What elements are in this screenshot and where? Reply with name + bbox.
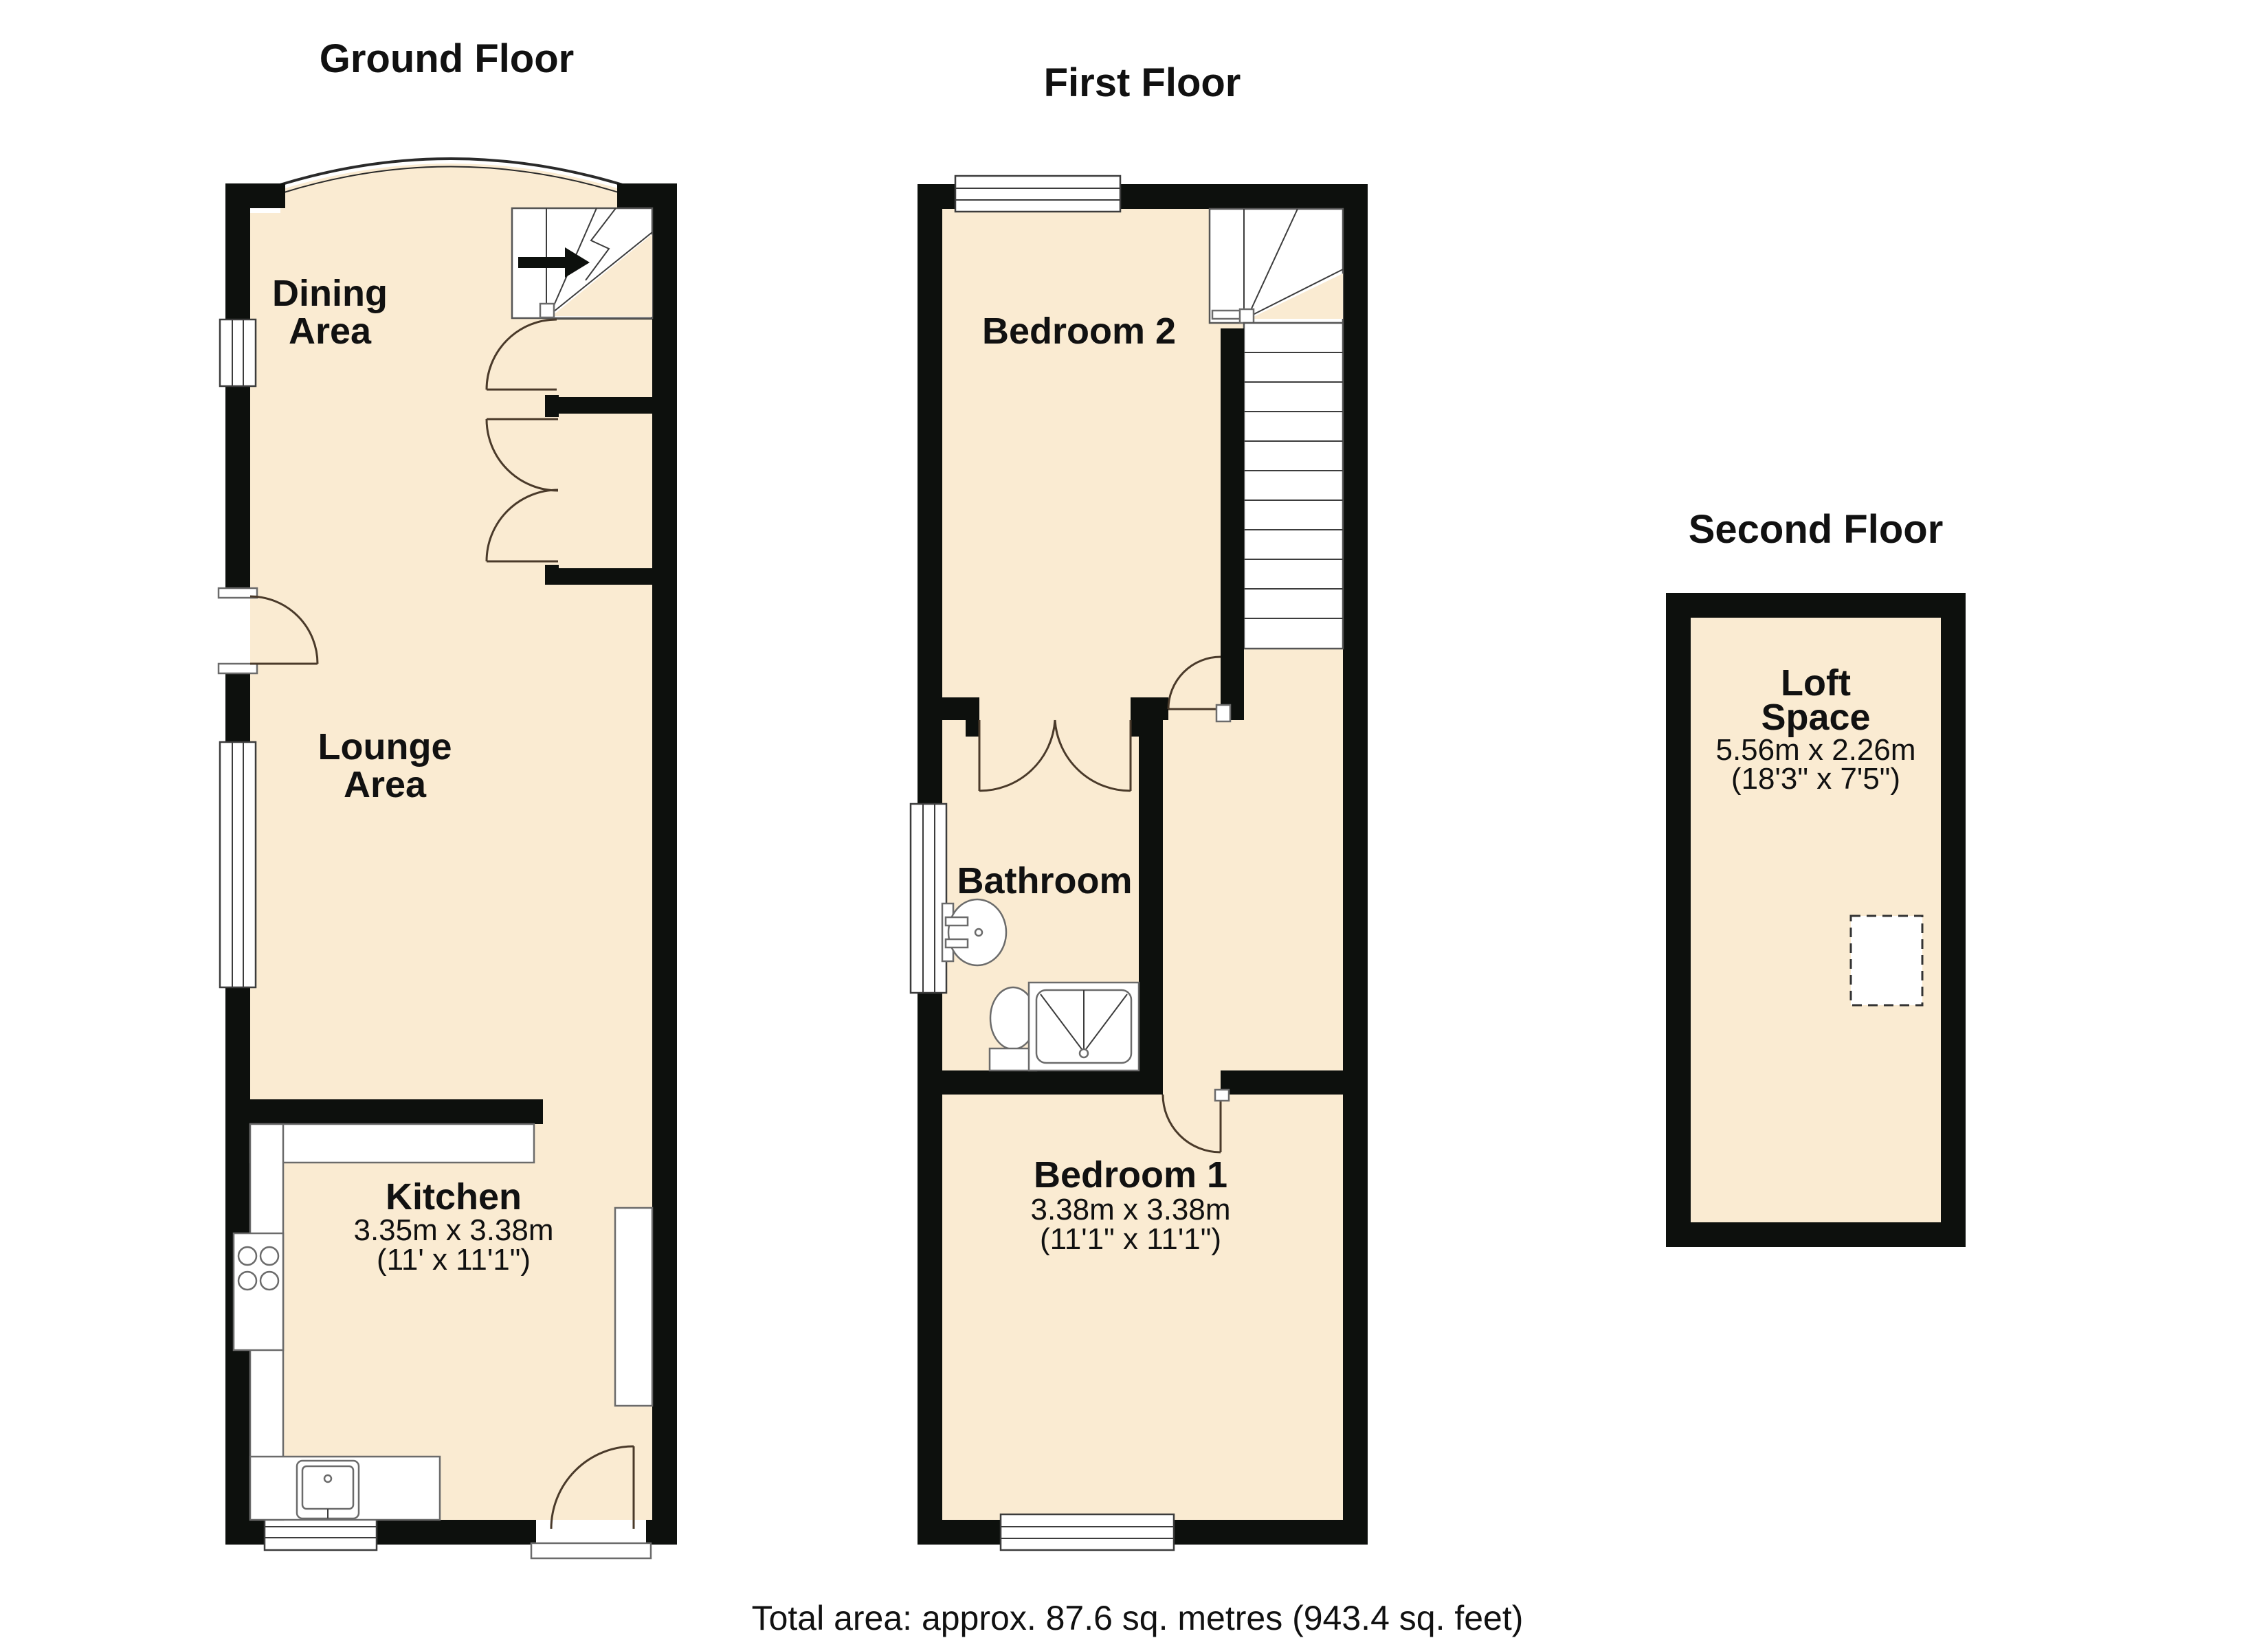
wall-hall-top (559, 397, 652, 414)
ff-wall-landing-left (918, 697, 979, 720)
dining-label-line2: Area (289, 311, 372, 352)
hob (234, 1233, 283, 1350)
loft-dim-imperial: (18'3" x 7'5") (1731, 762, 1900, 796)
bedroom1-dim-imperial: (11'1" x 11'1") (1040, 1222, 1221, 1256)
ff-stair-newel-post (1240, 309, 1254, 323)
sf-wall-left (1666, 593, 1691, 1247)
ground-floor-title: Ground Floor (320, 36, 575, 81)
sf-wall-top (1666, 593, 1966, 618)
bedroom1-dim-metric: 3.38m x 3.38m (1030, 1193, 1230, 1226)
kitchen-recess (615, 1208, 652, 1406)
bathroom-label: Bathroom (957, 860, 1133, 901)
lounge-window (220, 742, 256, 987)
kitchen-sink (297, 1461, 359, 1518)
ff-bottom-window (1001, 1514, 1174, 1550)
ff-wall-landing-mid (1131, 697, 1168, 720)
kitchen-dim-metric: 3.35m x 3.38m (353, 1213, 553, 1247)
wall-hall-stub-top (545, 395, 559, 417)
kitchen-label: Kitchen (386, 1176, 522, 1218)
ff-wall-bedroom1-top (1221, 1070, 1343, 1095)
shower-tray (1029, 983, 1139, 1070)
ground-floor-room-fill (250, 164, 652, 1520)
floorplan-page: Ground Floor (0, 0, 2268, 1649)
wall-hall-bottom (559, 568, 652, 585)
second-floor-plan: Second Floor Loft Space 5.56m x 2.26m (1… (1666, 507, 1966, 1247)
ff-wall-stairs-side (1221, 328, 1244, 720)
stairs-ground (512, 208, 652, 318)
ff-wall-right (1343, 184, 1368, 1545)
ff-top-window (955, 176, 1120, 212)
ff-wall-bathroom-bottom (918, 1070, 1163, 1095)
loft-label-line2: Space (1761, 697, 1870, 738)
wall-hall-stub-bottom (545, 565, 559, 585)
kitchen-dim-imperial: (11' x 11'1") (377, 1243, 531, 1277)
ff-wall-stub-a (966, 720, 979, 737)
bathroom-sink (942, 899, 1006, 965)
bedroom1-door-hinge (1215, 1090, 1229, 1101)
first-floor-plan: First Floor (911, 60, 1368, 1550)
lounge-label-line2: Area (344, 764, 427, 805)
stair-newel-post (540, 304, 554, 317)
bathroom-window (911, 804, 946, 993)
ground-floor-plan: Ground Floor (219, 36, 677, 1558)
bedroom1-label: Bedroom 1 (1034, 1154, 1227, 1196)
second-floor-title: Second Floor (1689, 507, 1944, 552)
bedroom2-door-hinge (1216, 705, 1230, 721)
sf-wall-bottom (1666, 1222, 1966, 1247)
loft-hatch (1851, 916, 1922, 1005)
wall-kitchen-divider (225, 1099, 543, 1124)
dining-window (220, 319, 256, 386)
wall-right (652, 183, 677, 1545)
sf-wall-right (1941, 593, 1966, 1247)
ff-wall-bathroom-right (1139, 720, 1163, 1095)
total-area-text: Total area: approx. 87.6 sq. metres (943… (752, 1599, 1524, 1637)
lounge-label-line1: Lounge (318, 726, 452, 767)
first-floor-title: First Floor (1044, 60, 1241, 105)
bedroom2-label: Bedroom 2 (982, 311, 1176, 352)
floorplan-canvas: Ground Floor (0, 0, 2268, 1649)
ff-stair-handrail (1212, 311, 1241, 319)
dining-label-line1: Dining (272, 273, 388, 314)
